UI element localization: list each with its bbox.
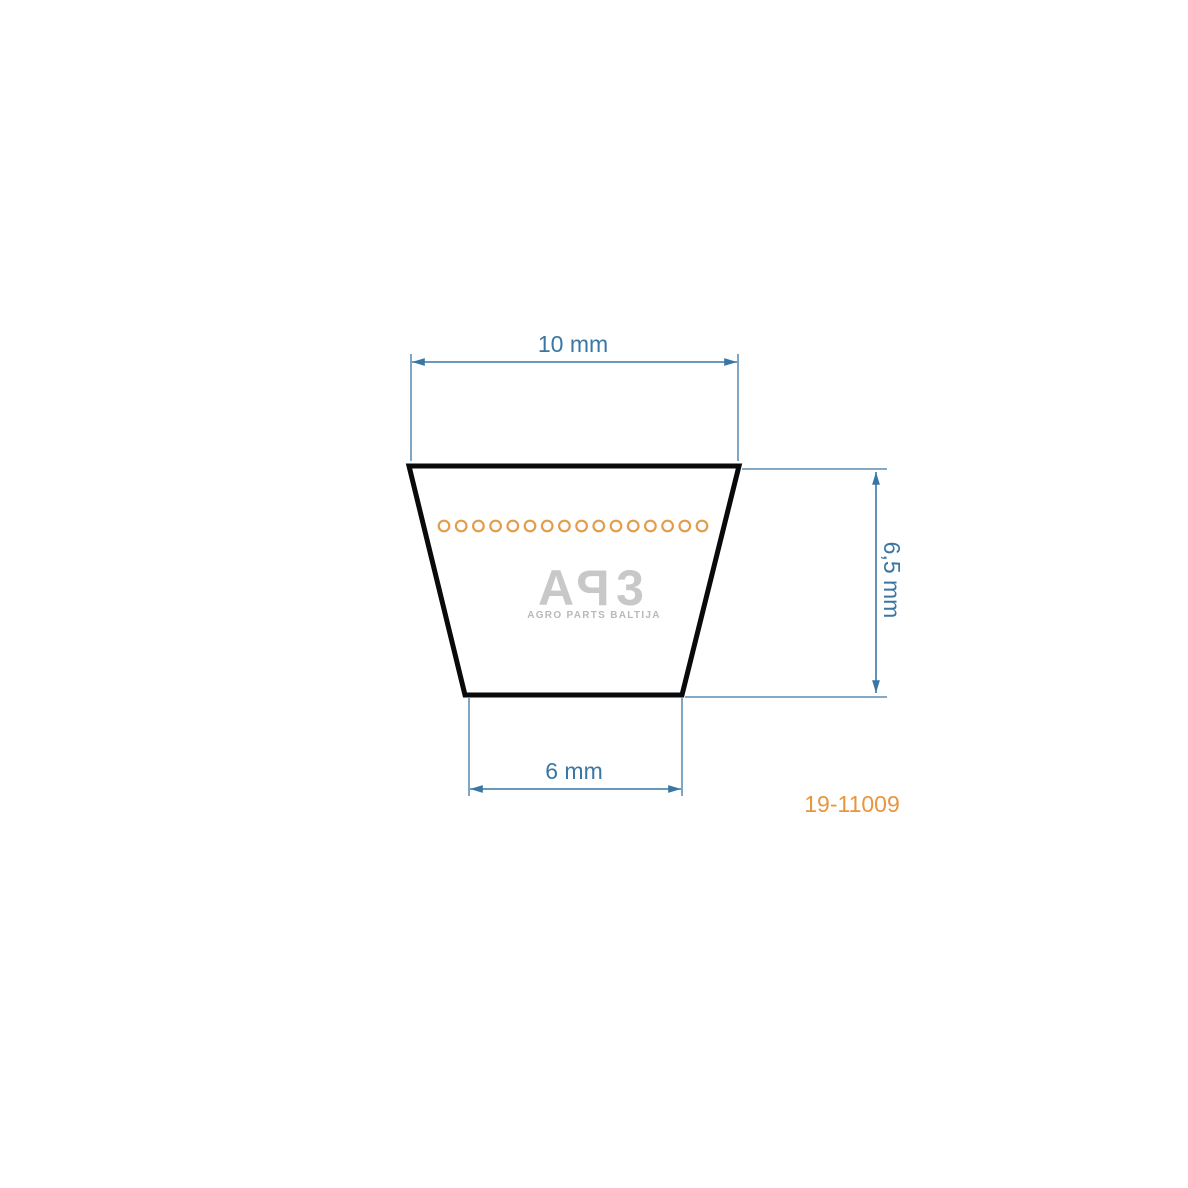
belt-cross-section-diagram: 10 mm 6,5 mm 6 mm 19-11009 A P 3 AGRO PA… (0, 0, 1188, 1188)
part-number-label: 19-11009 (804, 791, 900, 817)
technical-drawing-canvas: 10 mm 6,5 mm 6 mm 19-11009 A P 3 AGRO PA… (0, 0, 1188, 1188)
apb-logo-glyph-b: 3 (616, 560, 644, 616)
height-label: 6,5 mm (879, 542, 905, 619)
apb-logo-subtitle: AGRO PARTS BALTIJA (527, 610, 661, 621)
apb-logo-glyph-a: A (538, 560, 574, 616)
bottom-width-label: 6 mm (545, 758, 603, 784)
apb-logo: A P 3 AGRO PARTS BALTIJA (527, 560, 661, 621)
apb-logo-glyph-p: P (576, 560, 609, 616)
top-width-label: 10 mm (538, 331, 608, 357)
